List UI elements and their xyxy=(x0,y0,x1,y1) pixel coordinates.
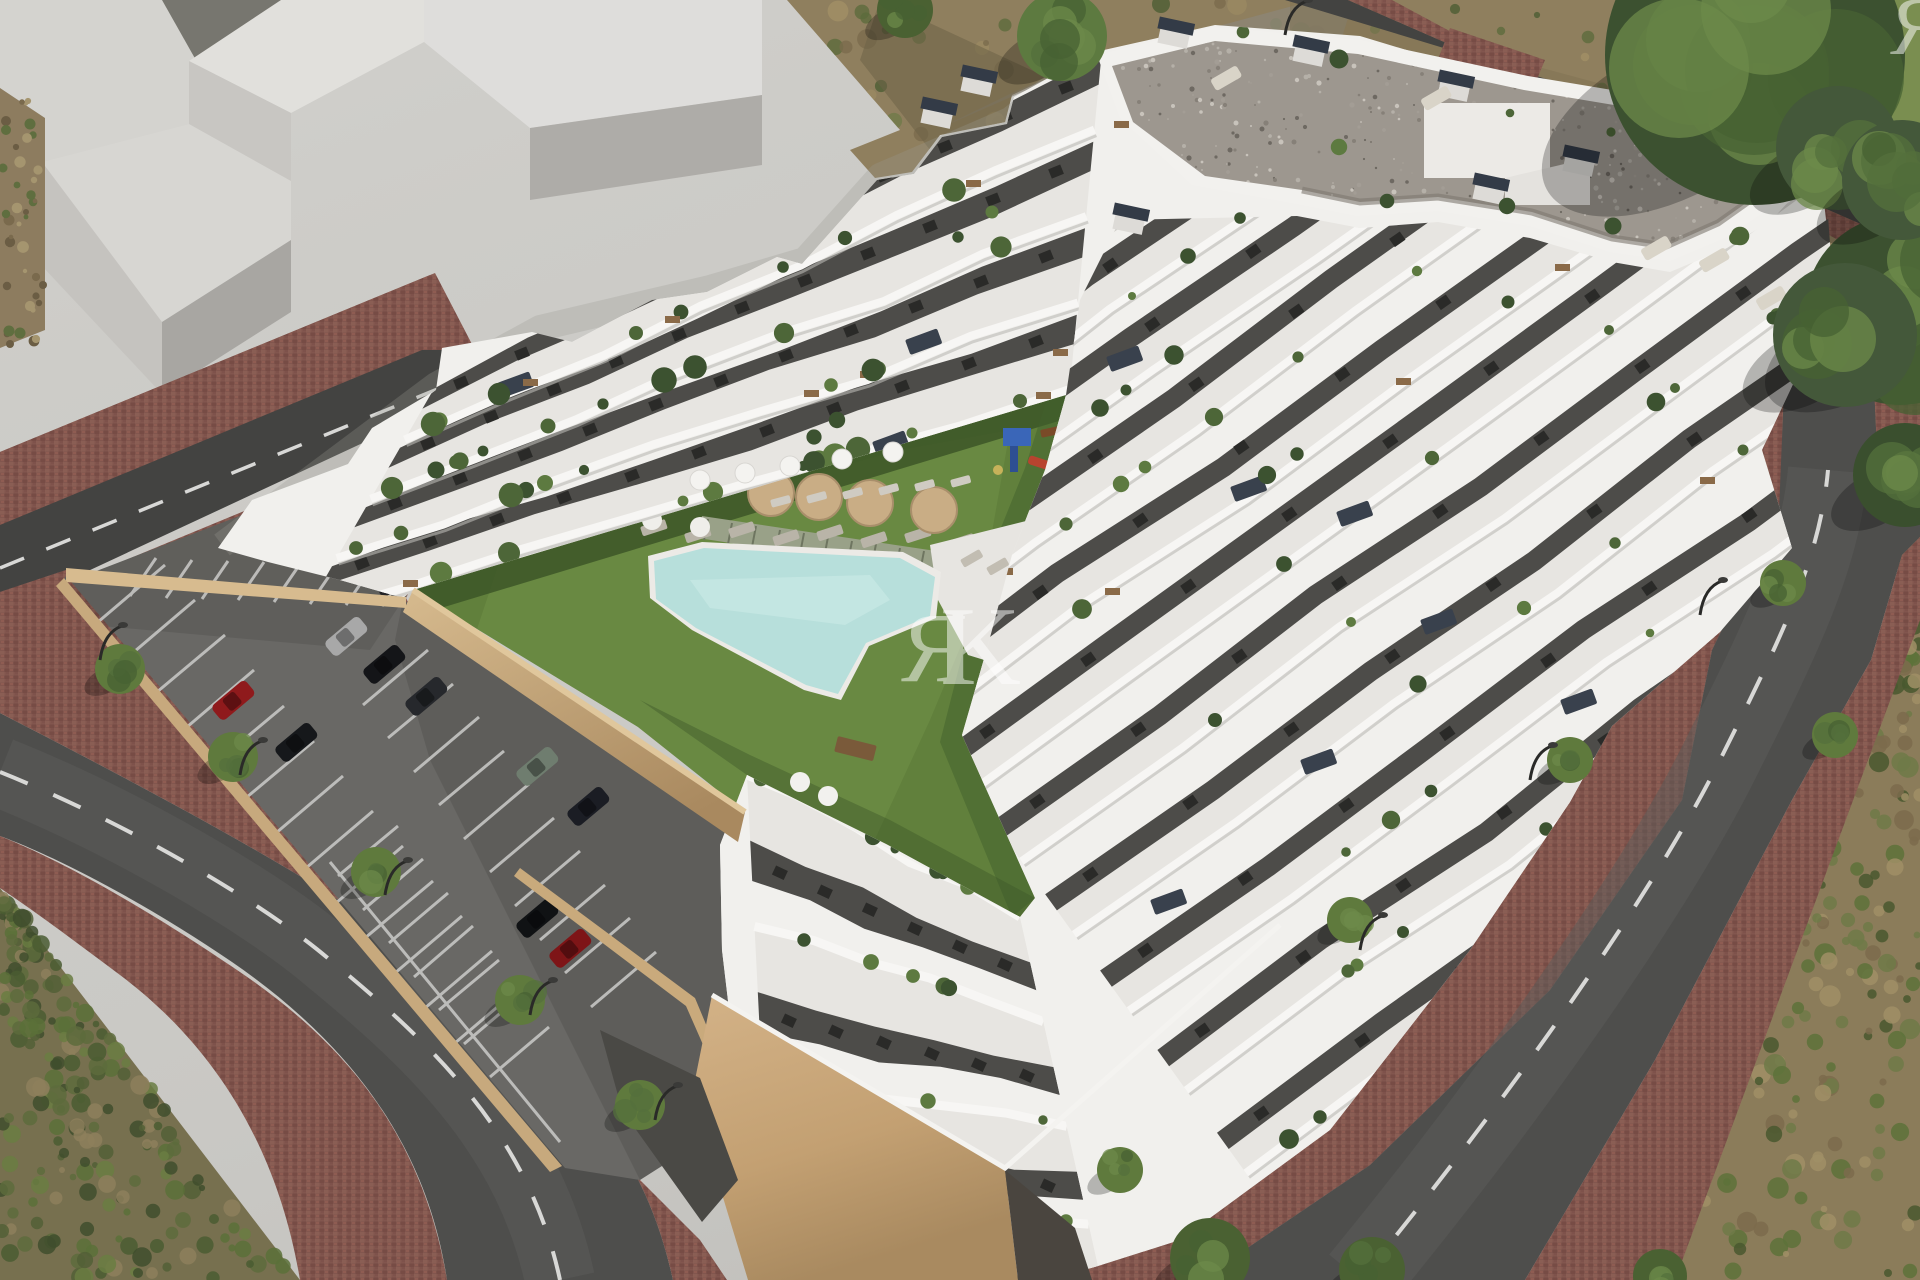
svg-text:Я: Я xyxy=(1890,0,1920,73)
svg-text:K: K xyxy=(940,585,1021,709)
